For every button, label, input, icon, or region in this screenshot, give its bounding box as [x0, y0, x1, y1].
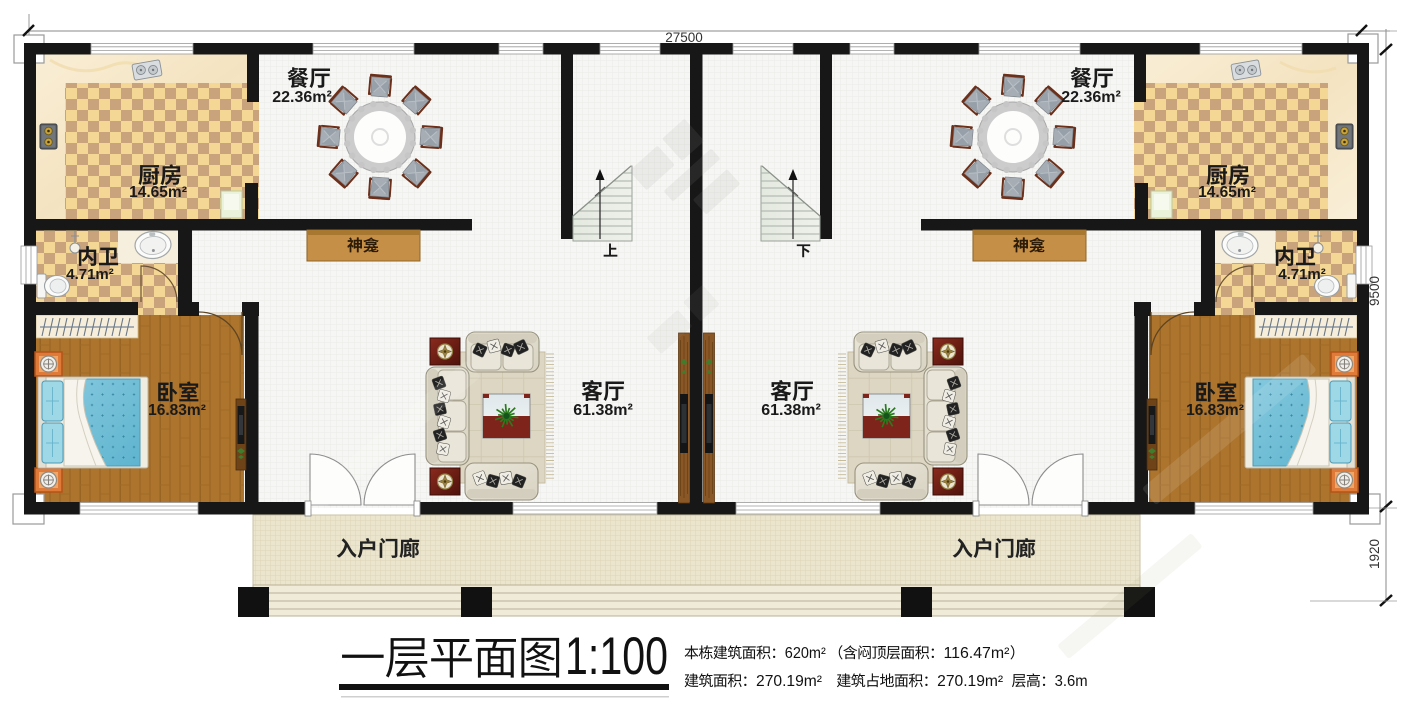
- svg-text:22.36m²: 22.36m²: [272, 89, 332, 106]
- svg-text:1920: 1920: [1367, 539, 1382, 569]
- svg-text:4.71m²: 4.71m²: [1278, 266, 1326, 283]
- svg-text:14.65m²: 14.65m²: [129, 184, 187, 201]
- svg-text:27500: 27500: [665, 30, 703, 45]
- svg-text:620m²: 620m²: [785, 645, 826, 662]
- svg-text:116.47m²: 116.47m²: [943, 645, 1009, 662]
- svg-text:16.83m²: 16.83m²: [148, 402, 206, 419]
- svg-text:270.19m²: 270.19m²: [937, 673, 1003, 690]
- svg-text:61.38m²: 61.38m²: [573, 402, 633, 419]
- svg-text:22.36m²: 22.36m²: [1061, 89, 1121, 106]
- svg-text:3.6m: 3.6m: [1055, 673, 1088, 690]
- svg-text:16.83m²: 16.83m²: [1186, 402, 1244, 419]
- svg-text:270.19m²: 270.19m²: [756, 673, 822, 690]
- svg-text:4.71m²: 4.71m²: [66, 266, 114, 283]
- svg-text:14.65m²: 14.65m²: [1198, 184, 1256, 201]
- svg-text:9500: 9500: [1367, 276, 1382, 306]
- svg-text:61.38m²: 61.38m²: [761, 402, 821, 419]
- svg-text:1:100: 1:100: [565, 627, 668, 686]
